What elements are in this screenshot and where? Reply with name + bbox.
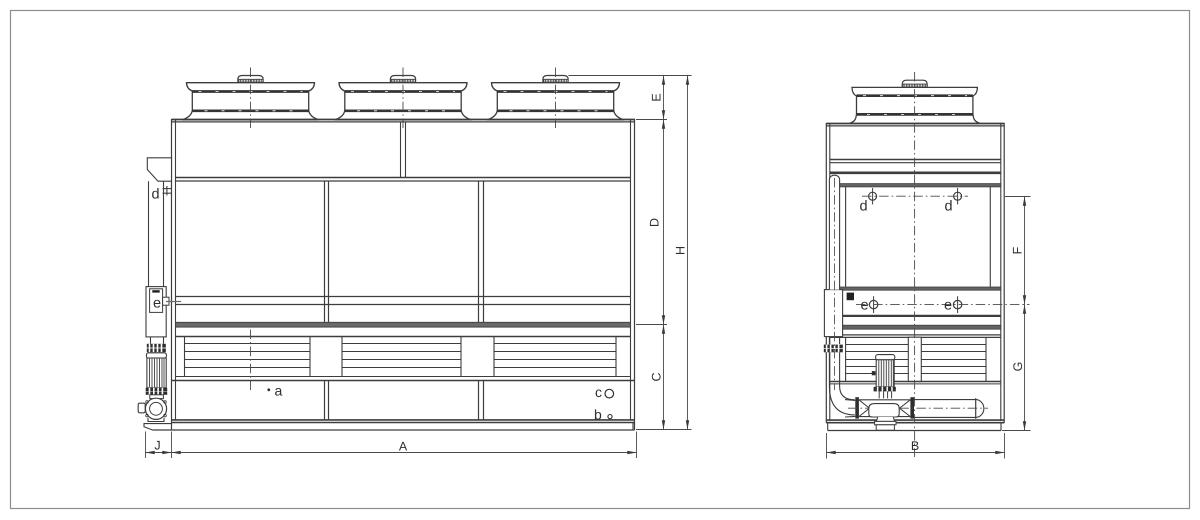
svg-text:D: D <box>648 218 662 227</box>
svg-text:B: B <box>911 439 919 453</box>
svg-text:A: A <box>399 440 408 454</box>
svg-text:c: c <box>595 384 602 400</box>
svg-text:e: e <box>153 296 161 312</box>
svg-text:e: e <box>861 298 869 314</box>
svg-text:E: E <box>650 93 664 101</box>
svg-text:d: d <box>945 199 953 215</box>
svg-text:H: H <box>674 246 688 255</box>
svg-text:J: J <box>154 439 160 453</box>
svg-text:C: C <box>650 372 664 381</box>
svg-text:F: F <box>1011 246 1025 254</box>
svg-text:a: a <box>275 383 283 399</box>
svg-text:e: e <box>944 298 952 314</box>
svg-text:d: d <box>860 199 868 215</box>
svg-text:b: b <box>594 407 602 423</box>
svg-text:G: G <box>1011 362 1025 372</box>
svg-text:d: d <box>152 187 160 203</box>
